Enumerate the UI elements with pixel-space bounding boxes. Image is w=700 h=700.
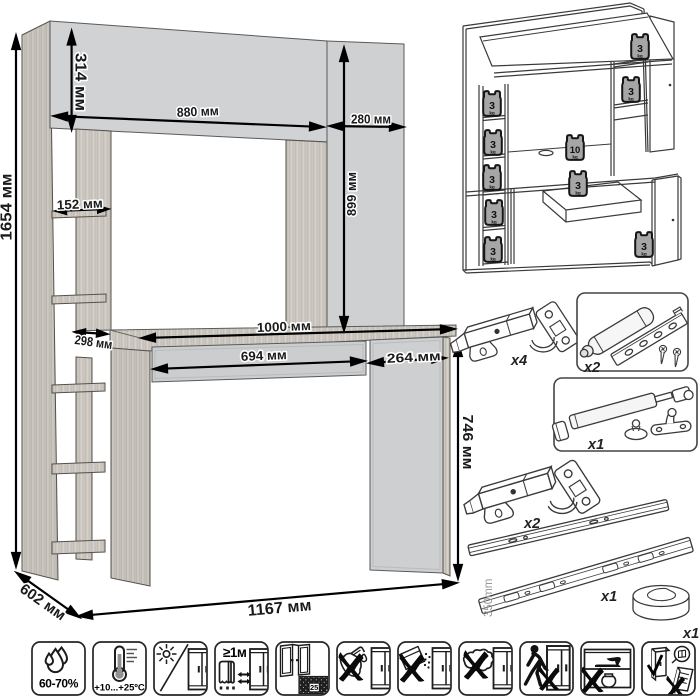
svg-text:60-70%: 60-70% [39, 677, 79, 691]
svg-text:kg: kg [628, 97, 634, 102]
svg-text:314 мм: 314 мм [72, 53, 89, 111]
svg-text:kg: kg [490, 257, 496, 262]
svg-text:899 мм: 899 мм [344, 172, 359, 216]
svg-text:880 мм: 880 мм [177, 103, 220, 120]
svg-text:264 мм: 264 мм [386, 348, 441, 366]
svg-text:kg: kg [489, 185, 495, 190]
svg-text:≥1м: ≥1м [223, 645, 247, 660]
svg-text:kg: kg [572, 155, 578, 160]
svg-text:350mm: 350mm [483, 579, 495, 617]
svg-text:25: 25 [310, 683, 318, 692]
svg-text:746 мм: 746 мм [459, 415, 476, 470]
svg-text:kg: kg [489, 111, 495, 116]
svg-text:1654 мм: 1654 мм [0, 174, 16, 241]
svg-text:152 мм: 152 мм [56, 196, 103, 213]
svg-text:x1: x1 [587, 437, 604, 453]
svg-text:kg: kg [491, 220, 497, 225]
svg-text:kg: kg [575, 191, 581, 196]
svg-text:x4: x4 [510, 353, 527, 369]
svg-text:x1: x1 [600, 589, 617, 605]
svg-text:+10...+25ºC: +10...+25ºC [94, 683, 145, 694]
svg-text:280 мм: 280 мм [351, 112, 391, 127]
svg-text:kg: kg [637, 54, 643, 59]
svg-text:kg: kg [641, 252, 647, 257]
svg-text:x1: x1 [682, 626, 699, 642]
svg-text:694 мм: 694 мм [241, 347, 288, 364]
svg-text:1000 мм: 1000 мм [257, 318, 312, 335]
svg-text:x2: x2 [583, 360, 600, 376]
svg-text:kg: kg [490, 150, 496, 155]
